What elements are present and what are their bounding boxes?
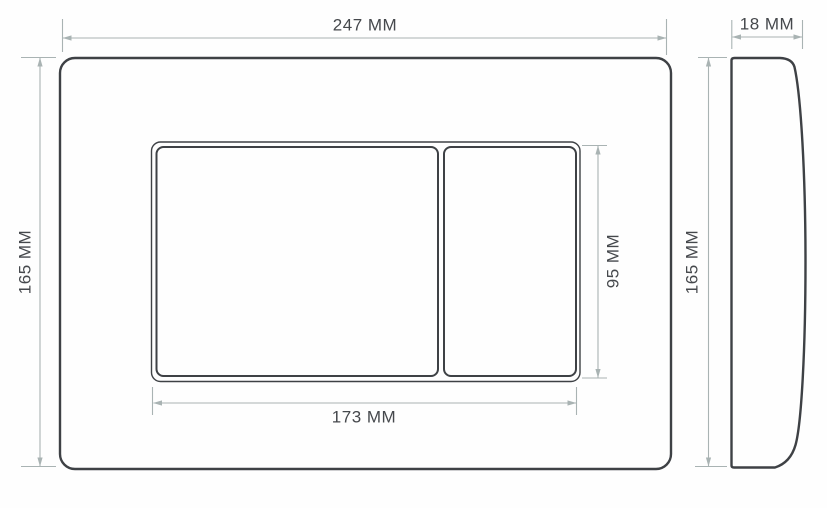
arrow-right-icon [568, 400, 577, 405]
dim-label-buttons-width: 173 MM [332, 409, 396, 426]
button-recess-outline [152, 142, 581, 382]
small-flush-button [444, 147, 576, 376]
side-profile-outline [732, 58, 806, 468]
arrow-right-icon [794, 34, 803, 39]
dim-label-side-height: 165 MM [684, 230, 701, 294]
arrow-up-icon [595, 146, 600, 155]
dim-label-side-depth: 18 MM [740, 16, 794, 33]
dim-label-small-button-height: 95 MM [605, 234, 622, 288]
dim-label-front-height: 165 MM [17, 230, 34, 294]
arrow-down-icon [706, 458, 711, 467]
side-view [732, 58, 806, 468]
dim-label-front-width: 247 MM [333, 17, 397, 34]
flush-plate-technical-drawing: 247 MM 18 MM 165 MM 95 MM 173 MM 165 MM [0, 0, 827, 508]
arrow-up-icon [706, 58, 711, 67]
arrow-down-icon [595, 369, 600, 378]
arrow-left-icon [732, 34, 741, 39]
drawing-svg [0, 0, 827, 508]
arrow-down-icon [37, 458, 42, 467]
large-flush-button [157, 147, 439, 376]
arrow-right-icon [658, 35, 667, 40]
arrow-up-icon [37, 58, 42, 67]
arrow-left-icon [63, 35, 72, 40]
arrow-left-icon [153, 400, 162, 405]
